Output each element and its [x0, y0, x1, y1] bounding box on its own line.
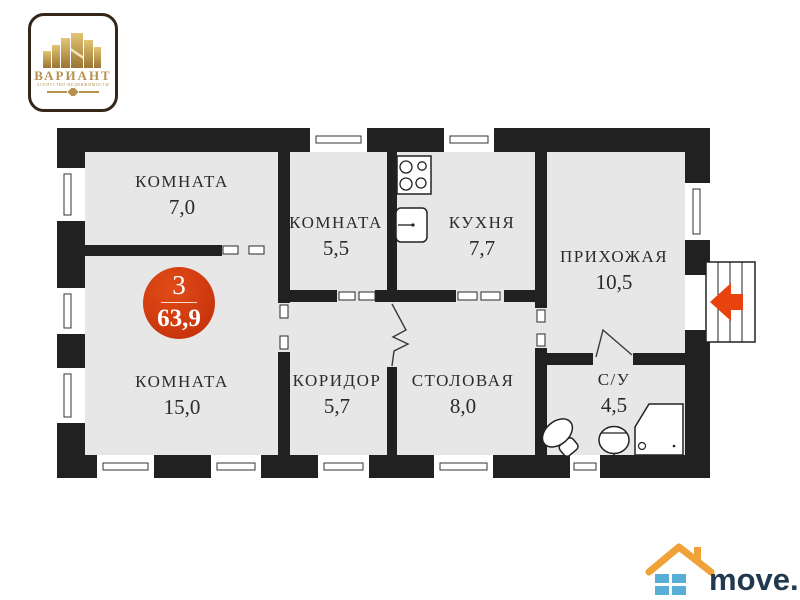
window-icon: [318, 455, 369, 478]
room-area: 5,5: [289, 236, 383, 261]
window-icon: [434, 455, 493, 478]
window-icon: [310, 128, 367, 152]
room-name: КОМНАТА: [289, 213, 383, 233]
window-icon: [211, 455, 261, 478]
window-icon: [57, 288, 85, 334]
floorplan-drawing: [0, 0, 800, 600]
room-label-komnata-5: КОМНАТА 5,5: [289, 213, 383, 261]
room-label-dining: СТОЛОВАЯ 8,0: [412, 371, 515, 419]
site-name: move.ru: [709, 563, 800, 597]
badge-total-area: 63,9: [143, 304, 215, 334]
rooms-area-badge: 3 63,9: [143, 267, 215, 339]
room-label-bathroom: С/У 4,5: [598, 370, 631, 418]
window-icon: [570, 455, 600, 478]
room-name: КУХНЯ: [449, 213, 515, 233]
room-label-hallway: ПРИХОЖАЯ 10,5: [560, 247, 668, 295]
room-area: 5,7: [293, 394, 382, 419]
room-name: ПРИХОЖАЯ: [560, 247, 668, 267]
agency-buildings-icon: [41, 30, 105, 68]
stove-icon: [397, 156, 431, 194]
room-label-komnata-7: КОМНАТА 7,0: [135, 172, 229, 220]
window-icon: [57, 368, 85, 423]
room-name: С/У: [598, 370, 631, 390]
room-name: СТОЛОВАЯ: [412, 371, 515, 391]
room-label-corridor: КОРИДОР 5,7: [293, 371, 382, 419]
room-label-kitchen: КУХНЯ 7,7: [449, 213, 515, 261]
room-area: 4,5: [598, 393, 631, 418]
window-icon: [97, 455, 154, 478]
room-area: 10,5: [560, 270, 668, 295]
room-label-komnata-15: КОМНАТА 15,0: [135, 372, 229, 420]
room-area: 7,7: [449, 236, 515, 261]
house-icon: [645, 542, 717, 597]
floorplan-page: КОМНАТА 7,0 КОМНАТА 5,5 КУХНЯ 7,7 ПРИХОЖ…: [0, 0, 800, 600]
window-icon: [444, 128, 494, 152]
badge-divider: [161, 302, 197, 303]
agency-name: ВАРИАНТ: [34, 69, 111, 82]
agency-logo: ВАРИАНТ АГЕНТСТВО НЕДВИЖИМОСТИ: [28, 13, 118, 112]
room-name: КОРИДОР: [293, 371, 382, 391]
room-area: 15,0: [135, 395, 229, 420]
window-icon: [57, 168, 85, 221]
room-name: КОМНАТА: [135, 372, 229, 392]
room-name: КОМНАТА: [135, 172, 229, 192]
agency-ornament: [45, 88, 101, 96]
kitchen-sink-icon: [396, 208, 427, 242]
room-area: 8,0: [412, 394, 515, 419]
badge-rooms-count: 3: [143, 270, 215, 301]
site-watermark: move.ru: [645, 542, 800, 597]
window-icon: [685, 183, 710, 240]
room-area: 7,0: [135, 195, 229, 220]
